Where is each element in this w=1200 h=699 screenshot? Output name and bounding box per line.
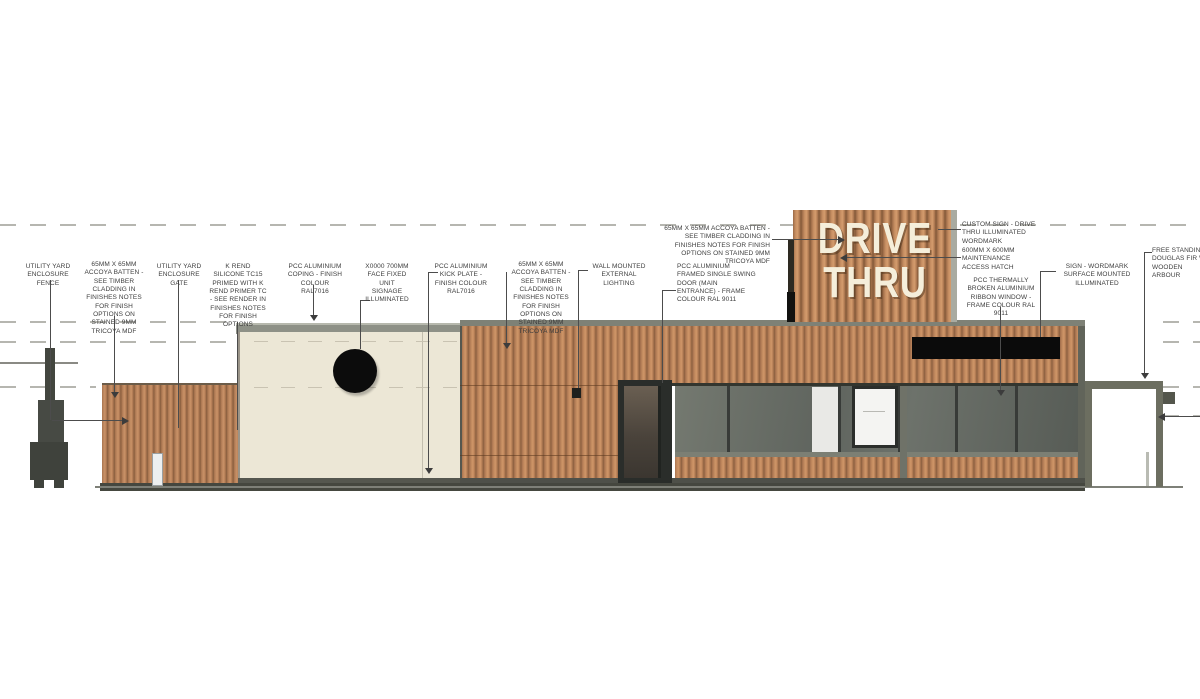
arbour-downpipe (1146, 452, 1149, 486)
drive-thru-tower: DRIVE THRU (793, 210, 957, 322)
totem-pole-mid (38, 400, 64, 445)
wordmark-line-2: THRU (808, 262, 942, 304)
facade-post (900, 386, 907, 480)
leader-line (1144, 252, 1152, 253)
door-glazing (624, 386, 661, 478)
leader-line (237, 322, 238, 430)
elevation-drawing: DRIVE THRU (0, 0, 1200, 699)
cladding-joint (460, 385, 618, 386)
totem-pole-base (30, 442, 68, 480)
datum-solid-line (0, 362, 78, 364)
annotation-custom-sign: CUSTOM SIGN - DRIVE THRU ILLUMINATED WOR… (962, 221, 1046, 246)
leader-line (772, 239, 840, 240)
leader-line (50, 280, 51, 420)
window-mullion (838, 386, 841, 452)
annotation-utility-yard-fence: UTILITY YARD ENCLOSURE FENCE (24, 263, 72, 288)
leader-arrow (1141, 373, 1149, 379)
annotation-accoya-batten-1: 65MM X 65MM ACCOYA BATTEN - SEE TIMBER C… (84, 261, 144, 336)
arbour-top-bar (1085, 381, 1163, 389)
leader-line (938, 229, 961, 230)
leader-arrow (122, 417, 129, 425)
arbour-left-post (1085, 381, 1092, 487)
leader-line (662, 290, 663, 383)
leader-line (428, 272, 429, 471)
leader-line (1162, 416, 1200, 417)
arbour-right-post (1156, 381, 1163, 487)
leader-arrow (310, 315, 318, 321)
leader-line (1000, 307, 1001, 393)
leader-line (1144, 252, 1145, 376)
annotation-unit-signage: X0000 700MM FACE FIXED UNIT SIGNAGE ILLU… (364, 263, 410, 305)
datum-line (1163, 341, 1200, 343)
totem-pole-foot (54, 478, 64, 488)
annotation-ribbon-window: PCC THERMALLY BROKEN ALUMINIUM RIBBON WI… (962, 277, 1040, 319)
leader-line (1040, 271, 1041, 337)
tower-left-base (787, 292, 795, 322)
annotation-wall-lighting: WALL MOUNTED EXTERNAL LIGHTING (588, 263, 650, 288)
circular-unit-signage (333, 349, 377, 393)
annotation-k-rend: K REND SILICONE TC15 PRIMED WITH K REND … (209, 263, 267, 330)
timber-cladding-lower (675, 457, 1078, 480)
datum-line (1163, 321, 1200, 323)
leader-line (506, 272, 507, 346)
cladding-joint (460, 455, 618, 456)
leader-line (662, 290, 676, 291)
annotation-accoya-batten-3: 65MM X 65MM ACCOYA BATTEN - SEE TIMBER C… (658, 225, 770, 267)
entrance-door (618, 380, 672, 483)
drive-thru-window (852, 386, 898, 448)
arbour-bracket (1163, 392, 1175, 404)
tower-right-edge (951, 210, 957, 322)
leader-line (360, 300, 361, 349)
annotation-kick-plate: PCC ALUMINIUM KICK PLATE - FINISH COLOUR… (434, 263, 488, 296)
ground-line (95, 486, 1183, 488)
datum-line (0, 341, 236, 343)
corner-post (1078, 326, 1085, 483)
wordmark-sign-band (912, 337, 1060, 359)
window-mullion (1015, 386, 1018, 452)
annotation-entrance-door: PCC ALUMINIUM FRAMED SINGLE SWING DOOR (… (677, 263, 757, 305)
window-poster-line (863, 411, 885, 412)
leader-line (578, 270, 588, 271)
utility-yard-fence (102, 383, 245, 487)
window-mullion (955, 386, 958, 452)
timber-cladding-left (460, 326, 620, 483)
annotation-coping: PCC ALUMINIUM COPING - FINISH COLOUR RAL… (286, 263, 344, 296)
annotation-utility-yard-gate: UTILITY YARD ENCLOSURE GATE (153, 263, 205, 288)
totem-pole-foot (34, 478, 44, 488)
window-mullion (727, 386, 730, 452)
annotation-free-standing: FREE STANDING DOUGLAS FIR W WOODEN ARBOU… (1152, 247, 1200, 280)
annotation-accoya-batten-2: 65MM X 65MM ACCOYA BATTEN - SEE TIMBER C… (508, 261, 574, 336)
leader-arrow (997, 390, 1005, 396)
leader-arrow (838, 236, 845, 244)
leader-arrow (1158, 413, 1165, 421)
leader-line (578, 270, 579, 388)
leader-arrow (111, 392, 119, 398)
datum-line (1163, 386, 1200, 388)
leader-arrow (840, 254, 847, 262)
annotation-sign-wordmark: SIGN - WORDMARK SURFACE MOUNTED ILLUMINA… (1054, 263, 1140, 288)
leader-line (845, 257, 961, 258)
wall-light-fixture (572, 388, 581, 398)
leader-line (52, 420, 124, 421)
leader-line (178, 280, 179, 428)
render-joint-line (422, 332, 423, 483)
bollard (152, 453, 163, 486)
annotation-access-hatch: 600MM X 600MM MAINTENANCE ACCESS HATCH (962, 247, 1022, 272)
leader-arrow (503, 343, 511, 349)
leader-arrow (425, 468, 433, 474)
white-infill-panel (812, 387, 838, 452)
